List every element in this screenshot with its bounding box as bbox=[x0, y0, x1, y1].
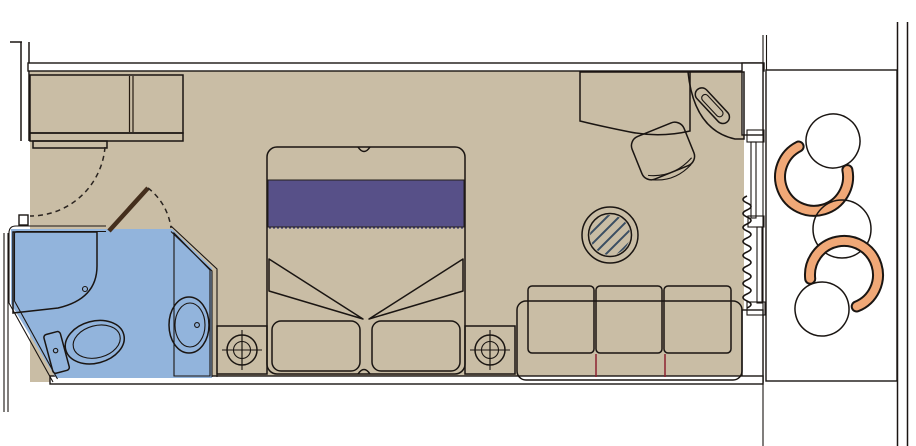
wall-top bbox=[28, 63, 764, 71]
wall-right-upper bbox=[742, 63, 763, 135]
floor-plan-canvas bbox=[0, 0, 916, 446]
glass-panel-lower bbox=[757, 227, 762, 303]
wall-right-lower bbox=[742, 310, 763, 382]
blanket bbox=[268, 180, 464, 227]
floor-plan bbox=[0, 0, 916, 446]
curtain[interactable] bbox=[743, 196, 751, 308]
entry-door-jamb bbox=[19, 215, 28, 225]
